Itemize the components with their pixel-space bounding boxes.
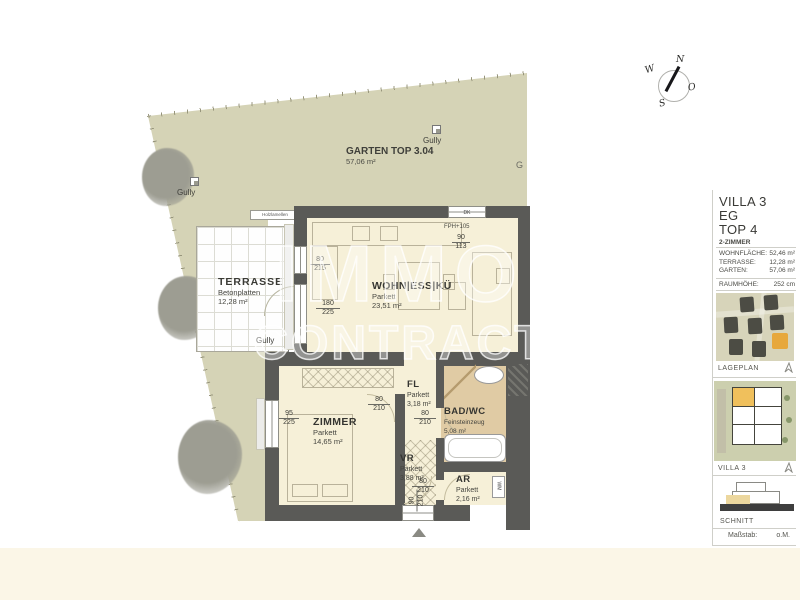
villa-label: VILLA 3 [718, 465, 746, 472]
metric-row: WOHNFLÄCHE: 52,46 m² [719, 250, 795, 259]
dk-window: DK [448, 206, 486, 218]
highlighted-building [772, 333, 788, 349]
building [724, 317, 739, 334]
facade-strip [256, 398, 265, 450]
highlighted-unit [732, 387, 755, 407]
wall [294, 206, 307, 246]
pillow [322, 484, 348, 497]
building [752, 341, 766, 357]
zimmer-label: ZIMMER Parkett 14,65 m² [313, 416, 357, 446]
compass-w: W [644, 63, 657, 76]
building [748, 318, 763, 335]
gully-label: Gully [423, 136, 441, 145]
divider [712, 377, 796, 378]
wall [436, 438, 444, 462]
kitchen-window [294, 246, 307, 274]
sidebar-title-line: TOP 4 [719, 223, 767, 237]
shrub [784, 395, 790, 401]
villa-thumbnail [714, 381, 796, 461]
washing-machine: WM [492, 476, 505, 498]
bad-label: BAD/WC Feinsteinzeug 5,08 m² [444, 406, 485, 436]
bottom-band [0, 548, 800, 600]
schnitt-thumbnail [720, 478, 794, 516]
fl-label: FL Parkett 3,18 m² [407, 379, 431, 409]
plan-line [732, 424, 782, 425]
building [739, 297, 754, 313]
divider [716, 290, 796, 291]
kitchen-hob [380, 226, 398, 241]
room-height-value: 252 cm [774, 281, 795, 290]
building [729, 339, 743, 355]
wall [436, 362, 444, 408]
wall [296, 206, 448, 218]
entrance-arrow-icon [412, 528, 426, 537]
fl-floor-type: Parkett [407, 391, 431, 400]
compass-n: N [676, 54, 684, 65]
wall [294, 274, 307, 284]
vr-name: VR [400, 453, 424, 465]
fixture [496, 268, 510, 284]
zimmer-window [265, 400, 279, 448]
metric-label: WOHNFLÄCHE: [719, 250, 767, 259]
fl-name: FL [407, 379, 431, 391]
metric-label: GARTEN: [719, 267, 748, 276]
room-height-label: RAUMHÖHE: [719, 281, 759, 290]
living-area-value: 23,51 m² [372, 301, 452, 310]
terrace-door [294, 284, 307, 344]
kitchen-sink [352, 226, 370, 241]
metric-value: 12,28 m² [769, 259, 795, 268]
scale-value: o.M. [776, 532, 790, 539]
wall [436, 462, 508, 472]
scale-row: Maßstab: o.M. [728, 532, 790, 539]
living-name: WOHN|ESS|KÜ [372, 280, 452, 292]
shrub [782, 437, 788, 443]
zimmer-name: ZIMMER [313, 416, 357, 428]
mini-compass-icon [783, 362, 794, 373]
ar-floor-type: Parkett [456, 486, 480, 495]
dim-bad-door: 80210 [414, 410, 436, 427]
schnitt-label: SCHNITT [720, 518, 754, 525]
bad-area-value: 5,08 m² [444, 427, 485, 436]
sidebar-title-line: VILLA 3 [719, 195, 767, 209]
dim-top-window: 90113 [452, 234, 470, 251]
dim-kitchen-window: 80215 [310, 256, 330, 273]
terrace-note-tag: Holzlamellen [250, 210, 300, 220]
vr-floor-type: Parkett [400, 465, 424, 474]
room-height-row: RAUMHÖHE: 252 cm [719, 281, 795, 290]
divider [712, 528, 796, 529]
zimmer-floor-type: Parkett [313, 428, 357, 437]
washbasin [474, 366, 504, 384]
metric-row: GARTEN: 57,06 m² [719, 267, 795, 276]
divider [712, 475, 796, 476]
compass-rose: N W S O [646, 56, 702, 114]
shower-area [444, 364, 476, 400]
building [763, 295, 778, 311]
kitchen-cabinet [312, 246, 338, 300]
gully-icon [190, 177, 199, 186]
dim-zimmer-door: 80210 [368, 396, 390, 413]
divider [712, 545, 796, 546]
terrace-title: TERRASSE [218, 276, 283, 288]
wall [265, 352, 279, 400]
sidebar-title-line: EG [719, 209, 767, 223]
sidebar-subtitle: 2-ZIMMER [719, 239, 750, 246]
wardrobe [302, 368, 394, 388]
wall [518, 206, 530, 366]
wall [265, 505, 402, 521]
dim-terrace-door: 180225 [316, 300, 340, 317]
wall [486, 206, 518, 218]
fl-area-value: 3,18 m² [407, 400, 431, 409]
wall [436, 500, 444, 521]
wall [265, 352, 404, 366]
garden-title: GARTEN TOP 3.04 [346, 146, 433, 157]
gully-label: Gully [256, 336, 274, 345]
garden-label: GARTEN TOP 3.04 57,06 m² [346, 146, 433, 166]
garden-partial-label: G [516, 160, 523, 170]
dim-entry-door: 90210 [409, 490, 426, 512]
bad-floor-type: Feinsteinzeug [444, 418, 485, 427]
metric-value: 52,46 m² [769, 250, 795, 259]
lageplan-label: LAGEPLAN [718, 365, 759, 372]
dim-zimmer-window: 95225 [279, 410, 299, 427]
ground-line [720, 504, 794, 511]
metric-row: TERRASSE: 12,28 m² [719, 259, 795, 268]
installation-shaft [508, 364, 528, 396]
metrics-table: WOHNFLÄCHE: 52,46 m² TERRASSE: 12,28 m² … [719, 250, 795, 276]
living-label: WOHN|ESS|KÜ Parkett 23,51 m² [372, 280, 452, 310]
shrub [786, 417, 792, 423]
sidebar-title: VILLA 3 EG TOP 4 [719, 195, 767, 237]
living-floor-type: Parkett [372, 292, 452, 301]
ar-label: AR Parkett 2,16 m² [456, 474, 480, 504]
sofa [472, 252, 512, 336]
fph-label: FPH+105 [444, 224, 470, 230]
floorplan-page: GARTEN TOP 3.04 57,06 m² G Gully Gully H… [0, 0, 800, 600]
garden-area-value: 57,06 m² [346, 157, 433, 166]
bad-name: BAD/WC [444, 406, 485, 418]
wall [436, 472, 444, 480]
scale-label: Maßstab: [728, 532, 757, 539]
zimmer-area-value: 14,65 m² [313, 437, 357, 446]
ar-name: AR [456, 474, 480, 486]
divider [716, 247, 796, 248]
metric-label: TERRASSE: [719, 259, 756, 268]
compass-o: O [687, 81, 697, 93]
path [717, 389, 726, 453]
sidebar-border [712, 190, 713, 546]
mini-compass-icon [783, 462, 794, 473]
pillow [292, 484, 318, 497]
metric-value: 57,06 m² [769, 267, 795, 276]
building [770, 315, 785, 331]
washing-machine-label: WM [496, 482, 502, 493]
gully-label: Gully [177, 188, 195, 197]
bathtub-inner [448, 438, 502, 458]
ar-area-value: 2,16 m² [456, 495, 480, 504]
lageplan-thumbnail [716, 293, 794, 361]
gully-icon [432, 125, 441, 134]
divider [716, 278, 796, 279]
